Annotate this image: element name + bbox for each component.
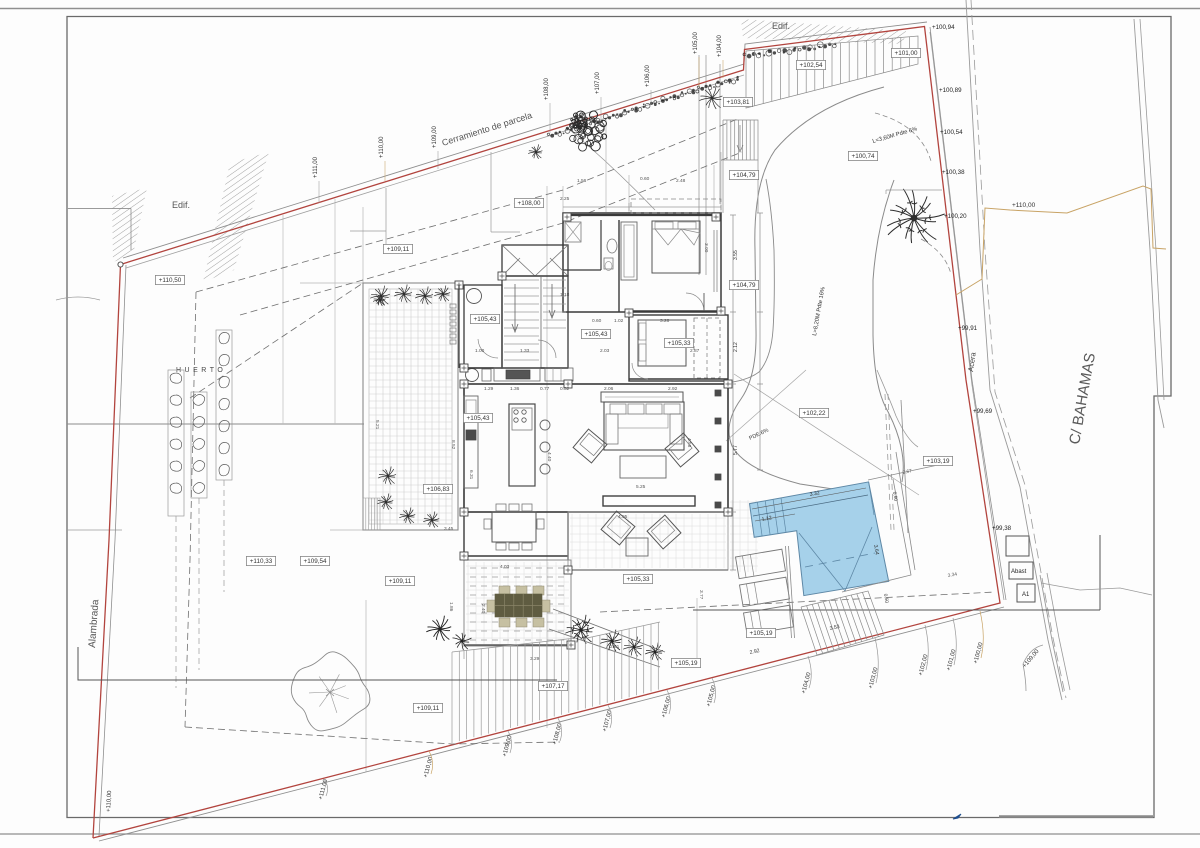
svg-text:1.18: 1.18 — [560, 292, 570, 298]
svg-text:+100,20: +100,20 — [944, 213, 967, 220]
svg-text:3.45: 3.45 — [444, 526, 454, 532]
svg-text:2.12: 2.12 — [733, 342, 739, 352]
svg-text:0.77: 0.77 — [540, 386, 550, 392]
svg-text:+102,54: +102,54 — [800, 62, 823, 69]
svg-text:+109,11: +109,11 — [387, 246, 410, 253]
svg-text:+109,00: +109,00 — [432, 125, 438, 148]
svg-text:0.60: 0.60 — [640, 176, 650, 182]
svg-text:+100,38: +100,38 — [942, 169, 965, 176]
svg-text:+103,19: +103,19 — [927, 458, 950, 465]
svg-text:Edif.: Edif. — [772, 21, 790, 31]
svg-text:3.55: 3.55 — [733, 250, 739, 260]
svg-text:+101,00: +101,00 — [895, 50, 918, 57]
svg-text:1.36: 1.36 — [510, 386, 520, 392]
svg-text:+108,00: +108,00 — [518, 200, 541, 207]
svg-text:+104,00: +104,00 — [717, 34, 723, 57]
svg-text:1.86: 1.86 — [448, 602, 454, 612]
svg-text:+110,00: +110,00 — [379, 136, 385, 158]
svg-text:1.00: 1.00 — [475, 348, 485, 354]
svg-text:4.03: 4.03 — [500, 564, 510, 570]
svg-text:A1: A1 — [1022, 592, 1030, 598]
svg-text:+111,00: +111,00 — [313, 156, 319, 178]
svg-text:3.28: 3.28 — [660, 318, 670, 324]
svg-text:+109,11: +109,11 — [389, 578, 412, 585]
svg-text:1.33: 1.33 — [520, 348, 530, 354]
svg-text:3.77: 3.77 — [698, 590, 704, 600]
svg-text:2.01: 2.01 — [610, 644, 620, 650]
svg-text:+105,33: +105,33 — [668, 340, 691, 347]
svg-text:+105,43: +105,43 — [585, 331, 608, 338]
svg-text:+110,33: +110,33 — [250, 558, 273, 565]
svg-text:4.58: 4.58 — [686, 438, 692, 448]
svg-text:5.21: 5.21 — [374, 420, 380, 430]
svg-text:1.29: 1.29 — [484, 386, 494, 392]
svg-text:Abast: Abast — [1011, 569, 1027, 575]
svg-text:+103,81: +103,81 — [727, 99, 750, 106]
svg-text:4.95: 4.95 — [618, 514, 628, 520]
svg-text:4.40: 4.40 — [546, 452, 552, 462]
svg-text:2.40: 2.40 — [480, 604, 486, 614]
svg-text:+109,54: +109,54 — [304, 558, 327, 565]
svg-text:3.00: 3.00 — [703, 243, 709, 253]
svg-text:0.60: 0.60 — [592, 318, 602, 324]
svg-text:+110,50: +110,50 — [159, 277, 182, 284]
svg-text:2.48: 2.48 — [676, 178, 686, 184]
svg-text:+104,79: +104,79 — [733, 282, 756, 289]
svg-text:+107,17: +107,17 — [542, 683, 565, 690]
svg-text:2.03: 2.03 — [600, 348, 610, 354]
svg-text:+99,38: +99,38 — [992, 525, 1012, 532]
svg-text:5.77: 5.77 — [733, 445, 739, 455]
svg-text:+106,83: +106,83 — [427, 486, 450, 493]
svg-text:+100,89: +100,89 — [939, 87, 962, 94]
svg-text:+108,00: +108,00 — [544, 77, 550, 100]
svg-text:+109,11: +109,11 — [417, 705, 440, 712]
svg-text:+105,19: +105,19 — [675, 660, 698, 667]
svg-text:1.56: 1.56 — [577, 178, 587, 184]
svg-text:2.92: 2.92 — [668, 386, 678, 392]
svg-text:0.32: 0.32 — [560, 386, 570, 392]
svg-text:+105,19: +105,19 — [750, 630, 773, 637]
svg-text:+99,69: +99,69 — [973, 408, 993, 415]
svg-text:5.25: 5.25 — [636, 484, 646, 490]
svg-text:6.31: 6.31 — [468, 470, 474, 480]
svg-text:+104,79: +104,79 — [733, 172, 756, 179]
svg-text:2.06: 2.06 — [604, 386, 614, 392]
svg-text:2.87: 2.87 — [690, 348, 700, 354]
svg-text:+102,22: +102,22 — [803, 410, 826, 417]
svg-text:+100,54: +100,54 — [940, 129, 963, 136]
svg-text:2.25: 2.25 — [560, 196, 570, 202]
svg-text:1.02: 1.02 — [614, 318, 624, 324]
svg-text:+106,00: +106,00 — [645, 64, 651, 87]
svg-text:+100,94: +100,94 — [932, 24, 955, 31]
svg-text:Edif.: Edif. — [172, 200, 190, 210]
svg-text:3.29: 3.29 — [530, 656, 540, 662]
svg-text:+110,00: +110,00 — [106, 790, 113, 812]
svg-text:+110,00: +110,00 — [1012, 202, 1036, 209]
svg-text:8.52: 8.52 — [450, 440, 456, 450]
svg-text:+99,91: +99,91 — [958, 325, 978, 332]
svg-text:+105,43: +105,43 — [474, 316, 497, 323]
svg-text:HUERTO: HUERTO — [176, 367, 226, 374]
svg-text:+100,74: +100,74 — [852, 153, 875, 160]
svg-text:+105,33: +105,33 — [627, 576, 650, 583]
svg-text:+105,43: +105,43 — [467, 415, 490, 422]
svg-text:+105,00: +105,00 — [693, 31, 699, 54]
svg-text:+107,00: +107,00 — [595, 71, 601, 94]
